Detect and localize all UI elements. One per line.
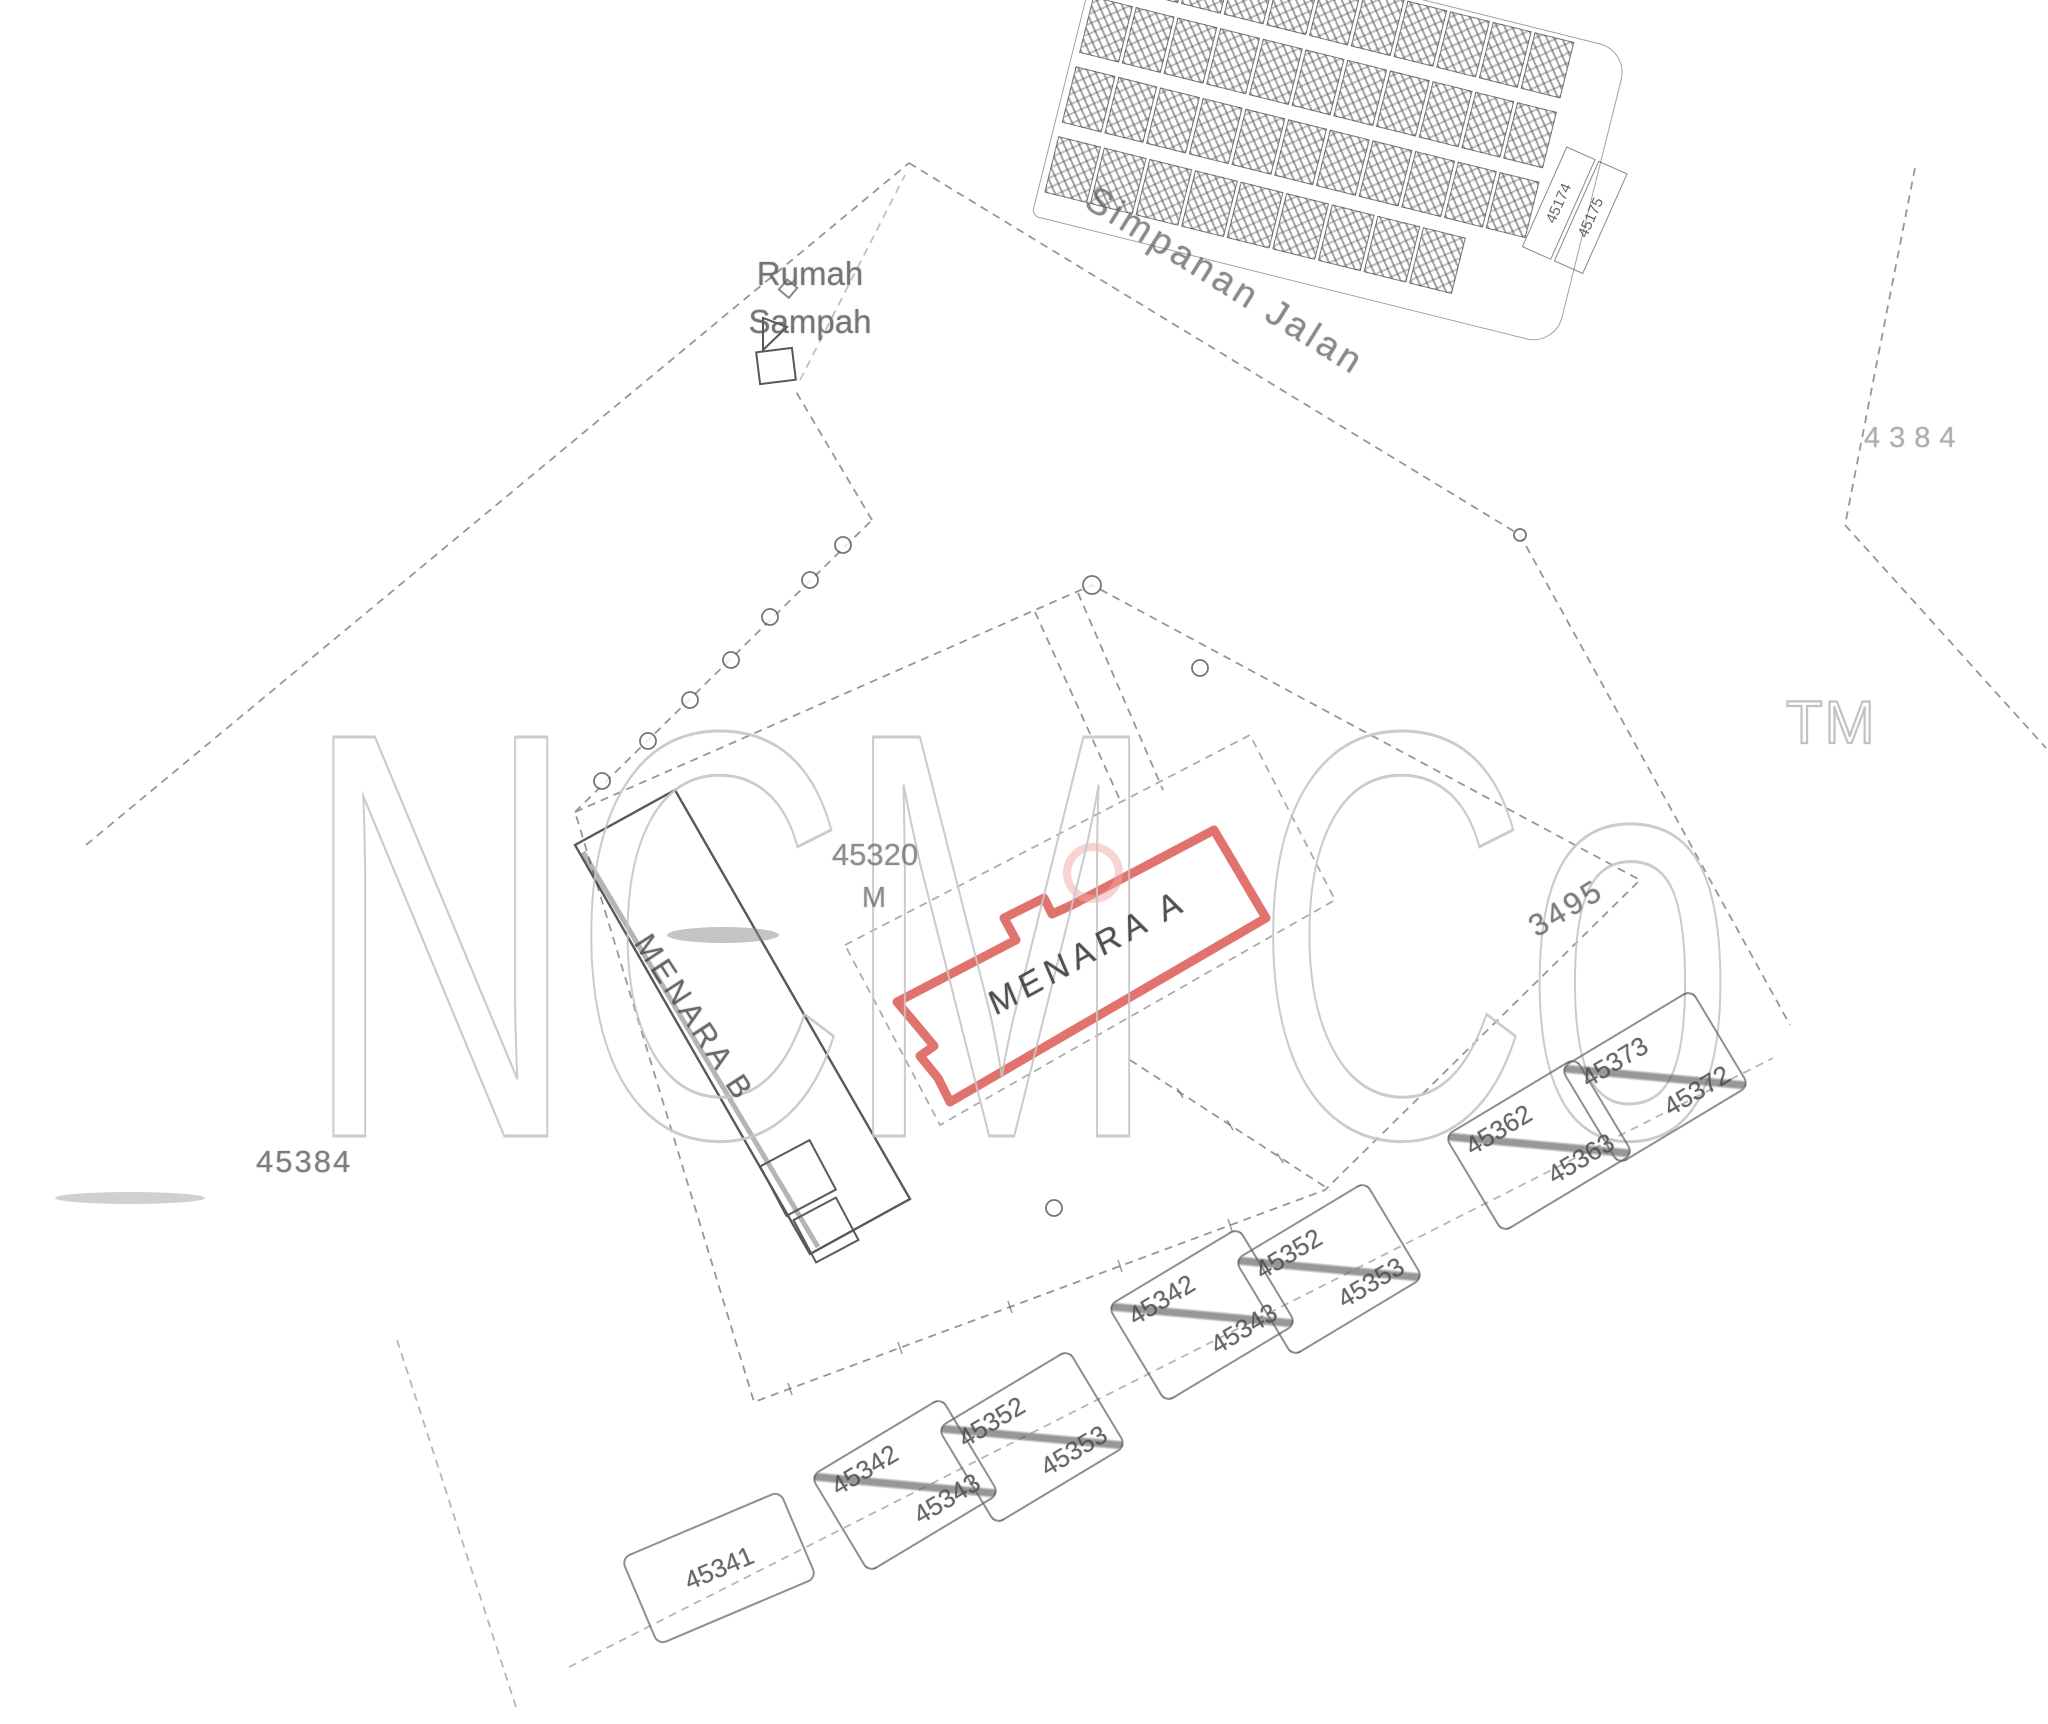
terrace-lot-cell bbox=[1409, 227, 1466, 294]
site-plan-canvas: NCM Co TM 45174 45175 Rumah Sampah Simpa… bbox=[0, 0, 2048, 1724]
lot-4384-label: 4384 bbox=[1864, 422, 1965, 455]
lot-45320-number: 45320 bbox=[832, 837, 918, 872]
rumah-sampah-line2: Sampah bbox=[749, 303, 872, 340]
lot-45320-unit: M bbox=[862, 882, 888, 914]
watermark-trademark-symbol: TM bbox=[1786, 688, 1877, 757]
lot-45384-label: 45384 bbox=[256, 1144, 352, 1180]
parcel-number: 45341 bbox=[680, 1540, 759, 1597]
rumah-sampah-label: Rumah Sampah bbox=[690, 250, 930, 346]
lot-45320-label: 45320 M bbox=[800, 834, 950, 918]
rumah-sampah-line1: Rumah bbox=[757, 255, 863, 292]
